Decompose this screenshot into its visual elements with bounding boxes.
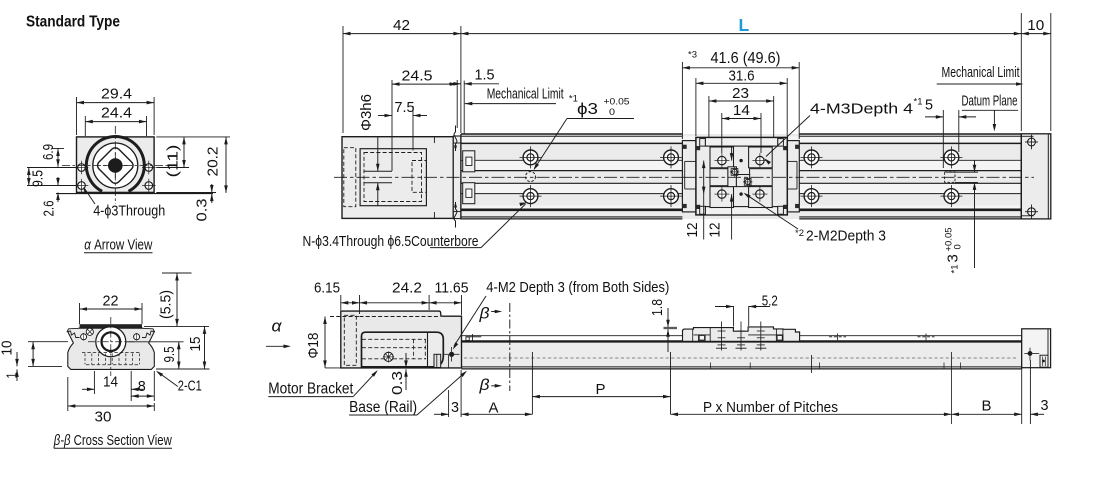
svg-text:8: 8: [138, 378, 146, 395]
svg-text:14: 14: [733, 102, 750, 119]
svg-text:α Arrow View: α Arrow View: [84, 237, 152, 254]
svg-text:A: A: [489, 399, 499, 416]
svg-text:6.15: 6.15: [314, 279, 340, 296]
svg-text:*1: *1: [950, 265, 961, 274]
svg-text:24.5: 24.5: [402, 67, 433, 84]
svg-text:3: 3: [451, 399, 459, 416]
svg-text:9.5: 9.5: [30, 170, 47, 187]
svg-text:β: β: [478, 306, 489, 323]
svg-text:(5.5): (5.5): [159, 290, 175, 319]
svg-text:1.5: 1.5: [475, 66, 495, 83]
svg-text:ϕ3: ϕ3: [577, 101, 598, 118]
svg-text:42: 42: [393, 17, 410, 34]
svg-text:Motor Bracket: Motor Bracket: [268, 380, 354, 397]
svg-text:L: L: [738, 15, 749, 35]
svg-text:0.3: 0.3: [194, 199, 211, 222]
svg-text:2-M2Depth 3: 2-M2Depth 3: [806, 228, 886, 245]
svg-text:P x Number of Pitches: P x Number of Pitches: [703, 399, 838, 416]
svg-text:30: 30: [95, 409, 112, 426]
svg-text:24.4: 24.4: [101, 104, 132, 121]
svg-text:Φ18: Φ18: [305, 333, 322, 359]
svg-text:α: α: [272, 317, 283, 336]
svg-text:*1: *1: [914, 97, 923, 108]
svg-text:14: 14: [103, 374, 118, 391]
svg-text:11.65: 11.65: [435, 279, 469, 296]
svg-text:Mechanical Limit: Mechanical Limit: [487, 86, 564, 102]
svg-text:29.4: 29.4: [101, 86, 132, 103]
svg-text:20.2: 20.2: [205, 147, 222, 177]
svg-text:3: 3: [945, 254, 962, 262]
svg-text:0: 0: [609, 107, 615, 118]
svg-text:2-C1: 2-C1: [178, 378, 202, 395]
svg-text:*2: *2: [795, 228, 804, 239]
svg-text:β-β Cross Section View: β-β Cross Section View: [53, 432, 172, 449]
svg-text:Mechanical Limit: Mechanical Limit: [942, 65, 1020, 81]
svg-text:0: 0: [953, 244, 964, 249]
svg-text:6.9: 6.9: [40, 144, 57, 160]
svg-text:7.5: 7.5: [395, 99, 415, 116]
svg-text:P: P: [596, 381, 606, 398]
svg-text:B: B: [982, 398, 992, 415]
svg-text:1.8: 1.8: [649, 299, 666, 316]
svg-text:3: 3: [1041, 397, 1049, 414]
svg-text:β: β: [478, 377, 489, 394]
svg-text:12: 12: [685, 223, 701, 238]
svg-text:10: 10: [1027, 17, 1044, 34]
svg-text:Datum Plane: Datum Plane: [962, 93, 1018, 109]
svg-text:24.2: 24.2: [392, 279, 422, 296]
svg-text:0.3: 0.3: [389, 371, 406, 395]
svg-text:Standard Type: Standard Type: [26, 14, 120, 31]
svg-text:41.6 (49.6): 41.6 (49.6): [711, 50, 781, 67]
svg-text:31.6: 31.6: [729, 68, 755, 85]
svg-text:4-M3Depth 4: 4-M3Depth 4: [810, 101, 913, 118]
svg-text:*3: *3: [688, 49, 697, 60]
svg-text:22: 22: [103, 292, 119, 309]
svg-text:2.6: 2.6: [41, 201, 58, 217]
svg-text:1: 1: [4, 373, 21, 379]
svg-text:Base (Rail): Base (Rail): [349, 399, 417, 416]
svg-text:+0.05: +0.05: [604, 96, 630, 107]
svg-text:9.5: 9.5: [161, 347, 178, 363]
svg-text:5: 5: [925, 96, 933, 113]
svg-text:23: 23: [732, 85, 749, 102]
svg-text:4-ϕ3Through: 4-ϕ3Through: [93, 203, 165, 220]
svg-text:4-M2 Depth 3 (from Both Sides): 4-M2 Depth 3 (from Both Sides): [486, 279, 669, 296]
svg-text:5.2: 5.2: [762, 293, 778, 310]
svg-text:12: 12: [708, 223, 724, 238]
svg-text:10: 10: [0, 341, 16, 356]
svg-text:Φ3h6: Φ3h6: [358, 94, 375, 131]
svg-text:(11): (11): [166, 145, 182, 178]
svg-text:15: 15: [187, 337, 204, 352]
